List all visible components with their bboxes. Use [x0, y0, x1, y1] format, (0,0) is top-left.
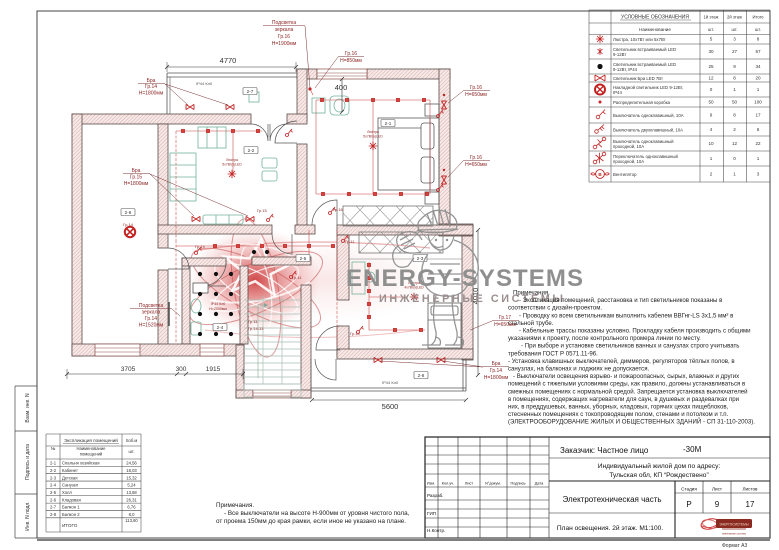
svg-text:25: 25	[708, 64, 714, 69]
svg-text:N°докум.: N°докум.	[485, 482, 501, 486]
svg-text:- При выборе и установке свети: - При выборе и установке светильников ва…	[521, 343, 740, 350]
svg-text:стальной трубе.: стальной трубе.	[508, 320, 554, 327]
svg-text:IP44 Кл0: IP44 Кл0	[196, 81, 213, 86]
svg-text:9-12Вт, IP44: 9-12Вт, IP44	[613, 67, 638, 72]
svg-text:Подсветка: Подсветка	[272, 20, 296, 26]
svg-text:2-6: 2-6	[125, 210, 132, 215]
svg-text:требования ГОСТ Р 0571.11-96.: требования ГОСТ Р 0571.11-96.	[508, 350, 598, 357]
svg-text:Sоб.м: Sоб.м	[126, 438, 138, 443]
svg-text:зеркала: зеркала	[142, 310, 161, 316]
svg-text:22: 22	[755, 141, 761, 146]
svg-text:Гр.16: Гр.16	[470, 155, 482, 161]
svg-text:Гр.15: Гр.15	[130, 175, 142, 181]
svg-text:шт.: шт.	[732, 27, 738, 32]
svg-text:Гр.14: Гр.14	[195, 244, 206, 249]
svg-text:в помещениях, содержащих на: в помещениях, содержащих нагреватели для…	[508, 396, 739, 403]
svg-text:1й этаж: 1й этаж	[704, 15, 719, 20]
svg-text:ИТОГО: ИТОГО	[62, 523, 78, 528]
svg-text:Итого: Итого	[753, 15, 765, 20]
svg-text:Тульская обл, КП “Рождествено”: Тульская обл, КП “Рождествено”	[609, 471, 708, 479]
svg-text:2-1: 2-1	[385, 121, 392, 126]
svg-text:24,56: 24,56	[126, 461, 137, 466]
svg-text:1: 1	[733, 87, 736, 92]
svg-text:Гр.14: Гр.14	[350, 331, 361, 336]
svg-text:(ЭЛЕКТРООБОРУДОВАНИЕ ЖИЛЫХ И О: (ЭЛЕКТРООБОРУДОВАНИЕ ЖИЛЫХ И ОБЩЕСТВЕННЫ…	[508, 418, 755, 426]
svg-text:1: 1	[710, 156, 713, 161]
svg-text:4: 4	[710, 127, 713, 132]
svg-text:2-2: 2-2	[248, 148, 255, 153]
svg-text:Кабинет: Кабинет	[62, 468, 78, 473]
svg-text:1915: 1915	[206, 366, 221, 373]
svg-text:34: 34	[755, 64, 761, 69]
svg-text:- Экспликация помещений, расст: - Экспликация помещений, расстановка и т…	[519, 297, 722, 304]
svg-text:Гр.14-13: Гр.14-13	[248, 326, 264, 331]
svg-text:Гр.14: Гр.14	[490, 368, 502, 374]
svg-text:Гр.14: Гр.14	[123, 222, 134, 227]
svg-text:Р: Р	[686, 500, 691, 509]
svg-text:УСЛОВНЫЕ ОБОЗНАЧЕНИЯ: УСЛОВНЫЕ ОБОЗНАЧЕНИЯ	[621, 15, 689, 21]
svg-text:Гр.16: Гр.16	[470, 85, 482, 91]
svg-text:IP44 Кл0: IP44 Кл0	[211, 302, 226, 306]
svg-text:300: 300	[176, 366, 187, 373]
svg-text:Листов: Листов	[743, 487, 758, 492]
svg-text:Экспликация помещений: Экспликация помещений	[64, 437, 118, 443]
svg-text:50: 50	[732, 100, 738, 105]
svg-text:Гр.14: Гр.14	[145, 316, 157, 322]
svg-text:Балкон 2: Балкон 2	[62, 512, 80, 517]
svg-text:ГИП: ГИП	[427, 511, 436, 516]
svg-text:3: 3	[757, 172, 760, 177]
svg-text:3: 3	[733, 37, 736, 42]
svg-text:5,24: 5,24	[127, 483, 136, 488]
svg-text:шт.: шт.	[708, 27, 714, 32]
svg-text:20: 20	[755, 76, 761, 81]
svg-text:помещений: помещений	[80, 452, 103, 457]
svg-text:Изм.: Изм.	[427, 482, 435, 486]
svg-text:-30М: -30М	[683, 445, 702, 454]
svg-text:2-4: 2-4	[50, 483, 57, 488]
svg-text:3705: 3705	[121, 366, 136, 373]
svg-text:Кладовая: Кладовая	[62, 497, 81, 502]
svg-text:Н=850мм: Н=850мм	[340, 58, 362, 64]
svg-text:8: 8	[733, 76, 736, 81]
svg-text:Н=1800мм: Н=1800мм	[484, 375, 509, 381]
svg-text:Гр.11: Гр.11	[292, 275, 302, 280]
svg-text:17: 17	[755, 113, 761, 118]
svg-text:Люстра: Люстра	[226, 158, 238, 162]
svg-text:9: 9	[733, 64, 736, 69]
svg-text:0: 0	[710, 87, 713, 92]
svg-text:указаниями к проекту, после ко: указаниями к проекту, после контрольного…	[508, 335, 701, 342]
svg-text:Наименование: Наименование	[639, 27, 671, 32]
svg-text:Подпись: Подпись	[510, 482, 525, 486]
svg-text:помещений с тяжелыми услови: помещений с тяжелыми условиями среды, ка…	[508, 381, 745, 388]
svg-text:смежных помещениях с нормал: смежных помещениях с нормальной средой. …	[508, 388, 748, 395]
svg-text:0: 0	[733, 156, 736, 161]
svg-text:Бра: Бра	[492, 361, 501, 367]
svg-text:инженерные системы: инженерные системы	[722, 533, 746, 536]
svg-text:шт.: шт.	[755, 27, 761, 32]
svg-text:Н=2000мм: Н=2000мм	[209, 307, 227, 311]
svg-text:8: 8	[733, 113, 736, 118]
svg-text:ENERGY-SYSTEMS: ENERGY-SYSTEMS	[346, 265, 584, 292]
svg-text:№: №	[51, 446, 56, 451]
svg-text:План освещения. 2й этаж. М1:10: План освещения. 2й этаж. М1:100.	[557, 524, 663, 532]
svg-text:5: 5	[710, 37, 713, 42]
svg-text:113,60: 113,60	[125, 518, 138, 523]
svg-text:Выключатель одноклавишный, 10А: Выключатель одноклавишный, 10А	[613, 113, 684, 118]
svg-text:Гр.16: Гр.16	[278, 34, 290, 40]
svg-text:шт.: шт.	[129, 449, 135, 454]
svg-text:4770: 4770	[220, 56, 237, 65]
svg-text:15,32: 15,32	[126, 475, 137, 480]
svg-text:12: 12	[708, 76, 714, 81]
svg-text:Распределительная коробка: Распределительная коробка	[613, 100, 671, 105]
svg-text:стесненных помещениях с ток: стесненных помещениях с токопроводящим п…	[508, 411, 729, 418]
svg-text:2-3: 2-3	[50, 475, 57, 480]
svg-text:57: 57	[755, 49, 761, 54]
svg-text:- Установка клавишных выключат: - Установка клавишных выключателей, димм…	[508, 358, 735, 365]
svg-text:Стадия: Стадия	[681, 487, 697, 492]
svg-text:IP44: IP44	[613, 90, 622, 95]
svg-text:6: 6	[757, 127, 760, 132]
svg-text:13,68: 13,68	[126, 490, 137, 495]
svg-text:Гр.11: Гр.11	[248, 319, 258, 324]
svg-text:8: 8	[757, 37, 760, 42]
svg-text:1: 1	[733, 172, 736, 177]
svg-text:2-6: 2-6	[50, 497, 57, 502]
svg-text:5600: 5600	[382, 402, 399, 411]
svg-text:2й этаж: 2й этаж	[727, 15, 742, 20]
svg-text:- Выключатели освещения вз: - Выключатели освещения взрыво- и пожаро…	[513, 373, 739, 380]
svg-text:IP44 Кл0: IP44 Кл0	[382, 380, 399, 385]
svg-text:17: 17	[746, 500, 755, 509]
svg-text:Санузел: Санузел	[62, 483, 79, 488]
svg-text:Примечания.: Примечания.	[216, 502, 254, 509]
svg-text:27: 27	[732, 49, 738, 54]
svg-text:2-7: 2-7	[50, 505, 57, 510]
svg-text:Бра: Бра	[132, 168, 141, 174]
svg-text:Гр.16: Гр.16	[333, 207, 344, 212]
svg-text:санузлах, на балконах и лоджия: санузлах, на балконах и лоджиях не допус…	[508, 366, 650, 373]
svg-text:зеркала: зеркала	[275, 27, 294, 33]
svg-text:Н.Контр.: Н.Контр.	[427, 528, 445, 533]
svg-text:Балкон 1: Балкон 1	[62, 505, 80, 510]
svg-text:1: 1	[757, 87, 760, 92]
svg-text:50: 50	[708, 100, 714, 105]
svg-text:5х7Вт(к)LED: 5х7Вт(к)LED	[222, 163, 242, 167]
svg-text:Гр.11: Гр.11	[345, 239, 355, 244]
svg-text:2-8: 2-8	[418, 373, 425, 378]
svg-text:Н=650мм: Н=650мм	[465, 162, 487, 168]
svg-text:от проема 150мм до края рамки,: от проема 150мм до края рамки, если иное…	[216, 518, 406, 525]
svg-text:Вентилятор: Вентилятор	[613, 172, 637, 177]
svg-text:9: 9	[710, 113, 713, 118]
svg-text:2-5: 2-5	[50, 490, 57, 495]
svg-text:Разраб.: Разраб.	[427, 493, 444, 498]
svg-text:Формат А3: Формат А3	[722, 543, 747, 549]
svg-text:Н=650мм: Н=650мм	[465, 92, 487, 98]
svg-text:6,76: 6,76	[127, 505, 136, 510]
svg-text:Гр.15: Гр.15	[257, 208, 268, 213]
svg-text:1: 1	[757, 156, 760, 161]
svg-text:Люстра, 10х7Вт или 5х7Вт: Люстра, 10х7Вт или 5х7Вт	[613, 37, 666, 42]
svg-text:10: 10	[708, 141, 714, 146]
svg-text:18,03: 18,03	[126, 468, 137, 473]
svg-text:2: 2	[710, 172, 713, 177]
svg-text:ЭНЕРГОСИСТЕМЫ: ЭНЕРГОСИСТЕМЫ	[719, 523, 748, 527]
svg-text:Накладной светильник LED 9-12В: Накладной светильник LED 9-12Вт,	[613, 85, 683, 90]
svg-text:9: 9	[715, 500, 720, 509]
svg-text:2: 2	[733, 127, 736, 132]
svg-text:2-2: 2-2	[50, 468, 57, 473]
svg-text:Детская: Детская	[62, 475, 78, 480]
svg-text:Примечания.: Примечания.	[513, 290, 550, 297]
svg-text:Лист: Лист	[465, 482, 474, 486]
svg-text:Спальня хозяйская: Спальня хозяйская	[62, 461, 99, 466]
svg-text:2-8: 2-8	[50, 512, 57, 517]
svg-text:Лист: Лист	[712, 487, 723, 492]
svg-text:Индивидуальный жилой дом по ад: Индивидуальный жилой дом по адресу:	[598, 462, 721, 470]
svg-text:8,0: 8,0	[129, 512, 135, 517]
svg-text:2-7: 2-7	[247, 89, 254, 94]
svg-text:2-4: 2-4	[217, 325, 224, 330]
svg-text:Гр.14: Гр.14	[145, 84, 157, 90]
svg-text:проходной, 10А: проходной, 10А	[613, 144, 644, 149]
svg-text:Гр.16: Гр.16	[345, 51, 357, 57]
svg-text:Н=1900мм: Н=1900мм	[272, 41, 297, 47]
svg-text:проходной, 10А: проходной, 10А	[613, 159, 644, 164]
svg-text:2-5: 2-5	[300, 256, 307, 261]
svg-text:соответствии с дизайн-проектом: соответствии с дизайн-проектом.	[508, 305, 602, 312]
svg-text:100: 100	[754, 100, 762, 105]
svg-text:Холл: Холл	[62, 490, 72, 495]
svg-text:Светильник Бра LED 7Вт: Светильник Бра LED 7Вт	[613, 76, 663, 81]
svg-text:- Все выключатели на высоте Н-: - Все выключатели на высоте Н-900мм от у…	[224, 510, 410, 517]
svg-text:5х7Вт(к)LED: 5х7Вт(к)LED	[363, 135, 383, 139]
svg-text:Выключатель двухклавишный, 10А: Выключатель двухклавишный, 10А	[613, 128, 683, 133]
svg-text:Кол.уч.: Кол.уч.	[442, 482, 454, 486]
svg-text:Н=1800мм: Н=1800мм	[139, 91, 164, 97]
svg-text:- Кабельные трассы показаны ус: - Кабельные трассы показаны условно. Про…	[519, 328, 751, 335]
svg-text:Взам. инв. N: Взам. инв. N	[25, 393, 31, 423]
svg-text:2-3: 2-3	[417, 256, 424, 261]
svg-text:9-12Вт: 9-12Вт	[613, 52, 626, 57]
svg-text:2-1: 2-1	[50, 461, 57, 466]
svg-text:Люстра: Люстра	[367, 130, 379, 134]
svg-text:- Проводку ко всем светильника: - Проводку ко всем светильникам выполнит…	[519, 312, 733, 319]
svg-text:них, в преддушевых, ванных,: них, в преддушевых, ванных, уборных, кла…	[508, 404, 729, 411]
svg-text:Электротехническая часть: Электротехническая часть	[562, 495, 661, 504]
svg-text:Заказчик: Частное лицо: Заказчик: Частное лицо	[560, 446, 649, 455]
svg-text:Подсветка: Подсветка	[139, 303, 163, 309]
svg-text:Подпись и дата: Подпись и дата	[25, 444, 31, 480]
svg-text:12: 12	[732, 141, 738, 146]
svg-text:Н=1520мм: Н=1520мм	[139, 323, 164, 329]
svg-text:Наименование: Наименование	[76, 446, 106, 451]
svg-text:Дата: Дата	[535, 482, 544, 486]
svg-text:Инв. N подл.: Инв. N подл.	[25, 501, 31, 530]
svg-text:30: 30	[708, 49, 714, 54]
svg-text:Н=1800мм: Н=1800мм	[124, 181, 149, 187]
svg-text:400: 400	[335, 83, 348, 92]
svg-text:26,31: 26,31	[126, 497, 137, 502]
